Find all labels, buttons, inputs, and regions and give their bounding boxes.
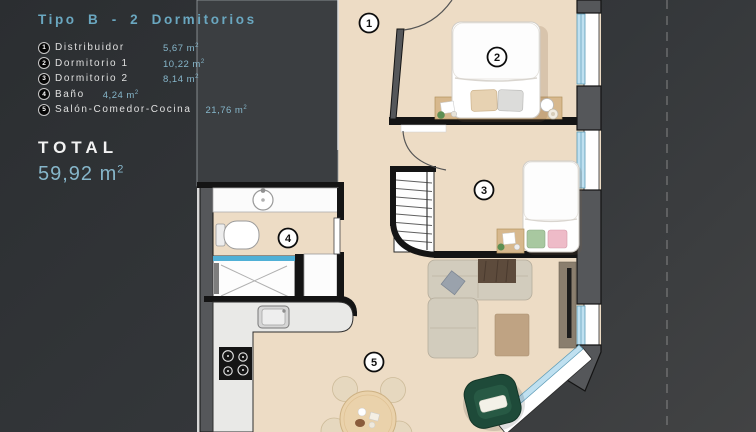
pillow-green bbox=[527, 230, 545, 248]
wall-pier bbox=[577, 86, 601, 130]
bedroom2-door-threshold bbox=[401, 125, 446, 132]
window-bedroom1 bbox=[577, 12, 599, 86]
legend-row-dormitorio2: 3 Dormitorio 2 8,14 m2 bbox=[38, 72, 308, 85]
room-marker-bano: 4 bbox=[279, 229, 298, 248]
wardrobe-closet bbox=[390, 166, 436, 255]
svg-text:3: 3 bbox=[481, 185, 487, 197]
legend-row-bano: 4 Baño 4,24 m2 bbox=[38, 88, 308, 101]
total-label: TOTAL bbox=[38, 138, 308, 158]
bathroom-bottom-wall bbox=[204, 296, 342, 302]
wall-pier bbox=[577, 0, 601, 13]
exterior-wall-left bbox=[197, 184, 213, 432]
pillow-pink bbox=[548, 230, 567, 248]
svg-text:4: 4 bbox=[285, 233, 292, 245]
bedroom1-furniture bbox=[435, 22, 562, 122]
legend-num-badge: 3 bbox=[38, 73, 50, 85]
legend-room-area: 21,76 m2 bbox=[206, 103, 248, 116]
legend-room-label: Dormitorio 1 bbox=[55, 58, 163, 69]
shower bbox=[213, 256, 295, 300]
legend-room-area: 10,22 m2 bbox=[163, 57, 205, 70]
desk bbox=[497, 229, 524, 253]
bathroom-niche bbox=[304, 254, 337, 298]
vanity-counter bbox=[213, 188, 338, 212]
legend-row-distribuidor: 1 Distribuidor 5,67 m2 bbox=[38, 41, 308, 54]
legend-room-label: Distribuidor bbox=[55, 42, 163, 53]
floorplan-page: 1 2 3 4 5 Tipo B - 2 Dormitorios 1 Distr… bbox=[0, 0, 756, 432]
svg-text:1: 1 bbox=[366, 18, 372, 30]
room-marker-dormitorio2: 3 bbox=[475, 181, 494, 200]
legend-room-label: Baño bbox=[55, 89, 85, 100]
pillow bbox=[498, 90, 524, 112]
svg-text:5: 5 bbox=[371, 357, 377, 369]
legend-num-badge: 4 bbox=[38, 88, 50, 100]
plant bbox=[498, 244, 505, 251]
total-block: TOTAL 59,92 m2 bbox=[38, 138, 308, 186]
legend-row-salon: 5 Salón-Comedor-Cocina 21,76 m2 bbox=[38, 103, 308, 116]
cooktop bbox=[219, 347, 252, 380]
tv bbox=[567, 268, 572, 338]
legend-room-label: Salón-Comedor-Cocina bbox=[55, 104, 192, 115]
legend-row-dormitorio1: 2 Dormitorio 1 10,22 m2 bbox=[38, 57, 308, 70]
double-bed bbox=[452, 22, 540, 118]
legend-panel: Tipo B - 2 Dormitorios 1 Distribuidor 5,… bbox=[38, 12, 308, 186]
kitchen-sink bbox=[258, 306, 289, 328]
legend-num-badge: 1 bbox=[38, 42, 50, 54]
pillow bbox=[471, 90, 498, 112]
legend-room-label: Dormitorio 2 bbox=[55, 73, 163, 84]
room-legend: 1 Distribuidor 5,67 m2 2 Dormitorio 1 10… bbox=[38, 41, 308, 116]
shower-partition-wall bbox=[295, 254, 304, 300]
ottoman bbox=[495, 314, 529, 356]
room-marker-distribuidor: 1 bbox=[360, 14, 379, 33]
toilet bbox=[216, 221, 259, 249]
window-livingroom bbox=[577, 304, 599, 348]
faucet bbox=[261, 188, 266, 193]
legend-num-badge: 5 bbox=[38, 104, 50, 116]
room-marker-dormitorio1: 2 bbox=[488, 48, 507, 67]
legend-num-badge: 2 bbox=[38, 57, 50, 69]
legend-room-area: 8,14 m2 bbox=[163, 72, 199, 85]
single-bed bbox=[523, 161, 579, 252]
room-marker-salon: 5 bbox=[365, 353, 384, 372]
total-area: 59,92 m2 bbox=[38, 163, 308, 186]
svg-text:2: 2 bbox=[494, 52, 500, 64]
plan-title: Tipo B - 2 Dormitorios bbox=[38, 12, 308, 27]
bathroom-door-leaf bbox=[334, 218, 340, 254]
legend-room-area: 4,24 m2 bbox=[103, 88, 139, 101]
plant bbox=[437, 111, 445, 119]
legend-room-area: 5,67 m2 bbox=[163, 41, 199, 54]
tv-sideboard bbox=[559, 262, 576, 348]
